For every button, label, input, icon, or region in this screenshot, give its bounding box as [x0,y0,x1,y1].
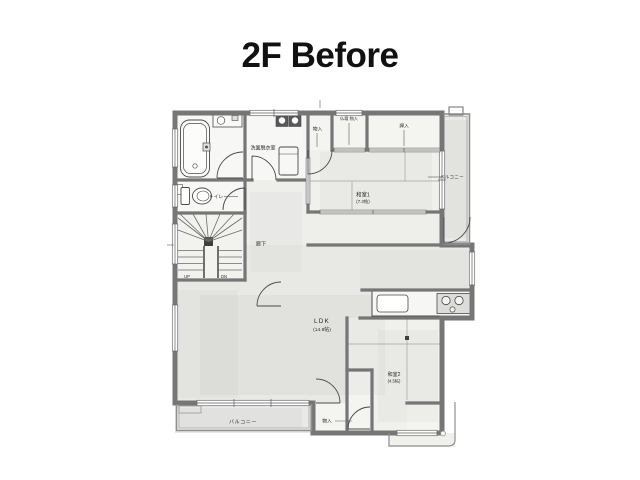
label-ldk-name: LDK [314,318,330,325]
label-oshiire: 押入 [399,123,409,130]
label-washitsu1-name: 和室1 [356,191,370,199]
label-stairs-dn: DN [221,274,227,279]
floor-plan-page: 2F Before [0,0,640,480]
label-washroom: 洗面脱衣室 [250,145,275,152]
bath-vanity-icon [213,114,242,127]
floor-plan-drawing: 洗面脱衣室 トイレ 廊下 物入 仏壇 物入 押入 和室1 (7.3帖) バルコニ… [0,0,640,480]
hallway-strip [308,212,442,245]
label-washitsu2-size: (4.5帖) [388,378,401,385]
label-washitsu2-name: 和室2 [388,371,401,378]
post-marker [405,336,409,340]
kitchen-counter-icon [372,291,472,316]
label-ldk-size: (14.8帖) [313,326,331,333]
label-stairs-up: UP [184,274,190,279]
label-storage-bottom: 物入 [322,418,332,425]
door-stop [441,431,446,436]
label-balcony-right: バルコニー [440,175,464,180]
closet-row [303,113,442,150]
label-altar-storage: 仏壇 物入 [340,115,359,122]
label-washitsu1-size: (7.3帖) [356,198,370,205]
label-toilet: トイレ [209,195,224,200]
label-balcony-bottom: バルコニー [229,420,257,426]
bathtub-icon [181,120,211,177]
label-corridor: 廊下 [256,240,266,248]
washer-icon [279,147,298,175]
room-storage-bottom [313,403,347,433]
label-storage-top: 物入 [313,126,323,133]
